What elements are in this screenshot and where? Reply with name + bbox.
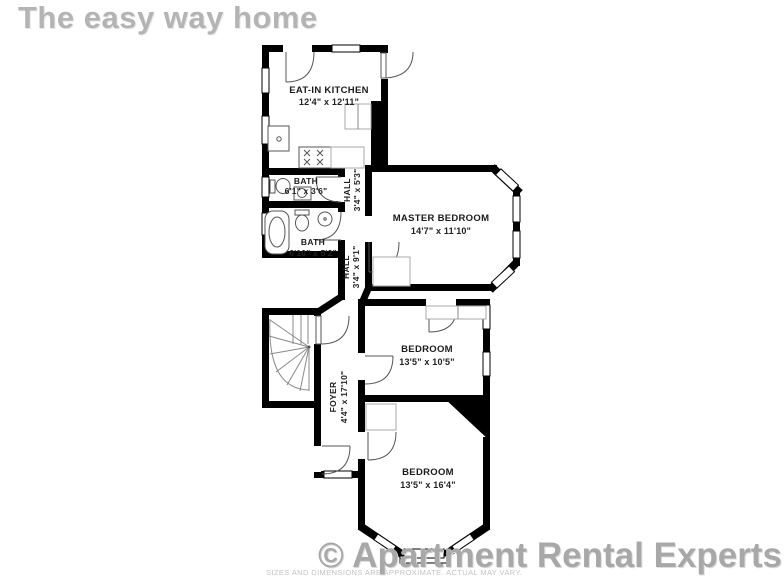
room-dims-bedroom2: 13'5" x 10'5" [399,357,454,367]
room-dims-bath2: 6'10" x 5'2" [289,248,337,258]
watermark: © Apartment Rental Experts [318,536,782,576]
cabinet [345,104,371,129]
room-dims-foyer: 4'4" x 17'10" [339,371,349,424]
window [262,68,269,93]
room-label-kitchen: EAT-IN KITCHEN [289,85,369,96]
door-arc [322,446,350,474]
room-label-bath1: BATH [294,176,318,186]
door-arc [381,52,413,78]
window [513,231,520,258]
room-dims-hall1: 3'4" x 5'3" [352,169,362,212]
walls [262,45,520,558]
bathtub-icon [265,211,289,254]
window [495,169,518,191]
closet [366,404,396,430]
room-label-bedroom3: BEDROOM [402,467,454,478]
room-label-foyer: FOYER [328,382,338,413]
spiral-staircase [269,315,311,391]
kitchen-fixtures [268,104,371,168]
counter [331,147,364,168]
closet [373,257,410,286]
window [483,352,490,376]
room-label-hall2: HALL [341,255,351,279]
door-arc [286,52,314,82]
room-label-bedroom2: BEDROOM [401,344,453,355]
window [262,177,269,197]
sink-icon [318,212,332,226]
door-arc [368,432,396,460]
room-dims-hall2: 3'4" x 9'1" [351,246,361,289]
window [324,471,352,478]
floor-plan: EAT-IN KITCHEN 12'4" x 12'11" BATH 6'1" … [0,0,784,588]
room-dims-master: 14'7" x 11'10" [411,226,471,236]
closet [426,306,486,319]
room-dims-kitchen: 12'4" x 12'11" [299,97,359,107]
floorplan-page: The easy way home [0,0,784,588]
sink-icon [268,126,289,151]
room-label-hall1: HALL [342,178,352,202]
door-arc [365,356,393,384]
room-label-master: MASTER BEDROOM [393,213,490,224]
room-label-bath2: BATH [301,237,325,247]
stove-icon [299,147,331,168]
window [332,45,360,52]
window [513,196,520,222]
room-dims-bedroom3: 13'5" x 16'4" [400,480,455,490]
room-dims-bath1: 6'1" x 3'6" [285,186,328,196]
toilet-icon [295,210,309,231]
door-arc [316,316,349,344]
window [491,266,514,288]
